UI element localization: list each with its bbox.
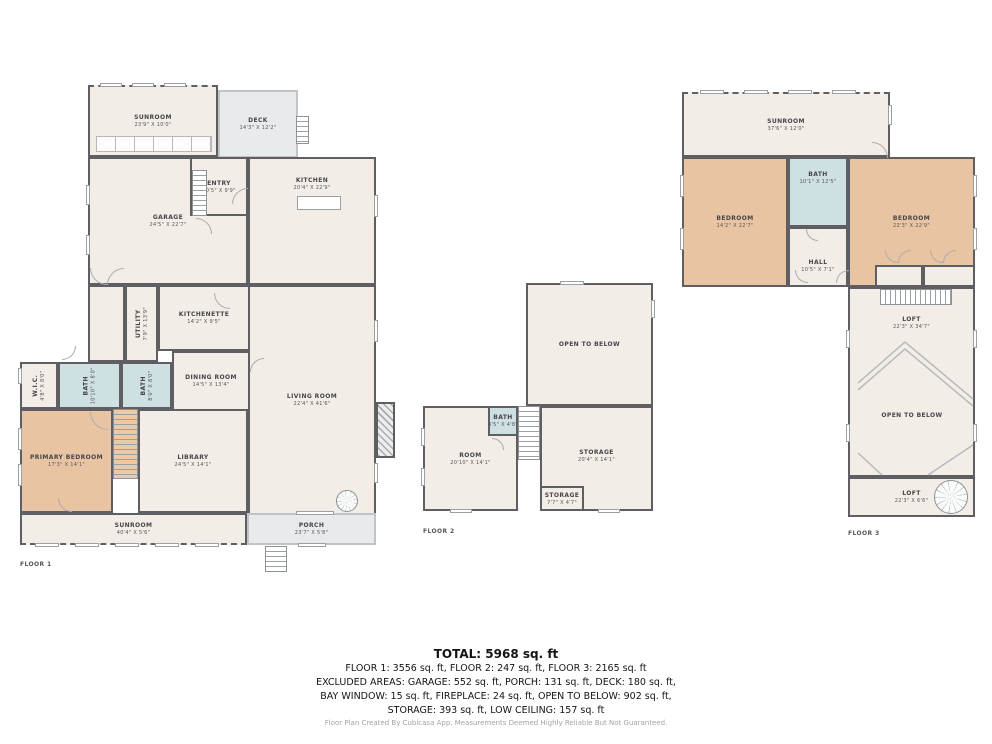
room-open-to-below: OPEN TO BELOW [526, 283, 653, 406]
window [86, 185, 90, 205]
room-dimensions: 4'5" X 4'8" [488, 422, 518, 429]
room-dimensions: 20'4" X 22'9" [250, 185, 374, 192]
room-sunroom: SUNROOM37'6" X 12'0" [682, 92, 890, 157]
room-library: LIBRARY24'5" X 14'1" [138, 409, 248, 513]
room-w-i-c: W.I.C.4'8" X 8'0" [20, 362, 58, 409]
room-name: UTILITY [134, 307, 143, 340]
room [875, 265, 923, 287]
window [651, 300, 655, 318]
room-dimensions: 7'7" X 4'7" [545, 500, 580, 507]
window [680, 228, 684, 250]
window [115, 543, 139, 547]
room-dimensions: 20'10" X 14'1" [450, 460, 490, 467]
window [86, 235, 90, 255]
window [700, 90, 724, 94]
room [88, 285, 125, 362]
room-dimensions: 24'5" X 22'7" [150, 222, 187, 229]
summary-excluded-areas-3: STORAGE: 393 sq. ft, LOW CEILING: 157 sq… [0, 704, 992, 718]
room-dimensions: 14'2" X 9'5" [179, 319, 229, 326]
window [973, 175, 977, 197]
room-name: W.I.C. [31, 371, 40, 401]
window [374, 463, 378, 483]
room-porch: PORCH23'7" X 5'8" [247, 513, 376, 545]
window [832, 90, 856, 94]
window [100, 83, 122, 87]
room-dimensions: 4'8" X 8'0" [40, 371, 47, 401]
room-name: LIBRARY [175, 453, 212, 462]
window [421, 468, 425, 486]
room-dimensions: 10'1" X 12'5" [790, 179, 846, 186]
summary-floor-areas: FLOOR 1: 3556 sq. ft, FLOOR 2: 247 sq. f… [0, 662, 992, 676]
room-kitchenette: KITCHENETTE14'2" X 9'5" [158, 285, 250, 351]
room-name: KITCHEN [250, 176, 374, 185]
room-bath: BATH10'1" X 12'5" [788, 157, 848, 227]
room-dimensions: 10'10" X 8'0" [91, 367, 98, 404]
window [560, 281, 584, 285]
area-summary: TOTAL: 5968 sq. ft FLOOR 1: 3556 sq. ft,… [0, 646, 992, 718]
summary-excluded-areas-1: EXCLUDED AREAS: GARAGE: 552 sq. ft, PORC… [0, 676, 992, 690]
room-bath: BATH8'0" X 8'0" [121, 362, 172, 409]
room-utility: UTILITY7'9" X 13'9" [125, 285, 158, 362]
room-name: BEDROOM [716, 214, 753, 223]
room-name: LOFT [895, 489, 928, 498]
room-bath: BATH10'10" X 8'0" [58, 362, 121, 409]
cathedral-ceiling-lines [848, 287, 975, 477]
room-dimensions: 23'9" X 10'0" [134, 122, 172, 129]
room-name: HALL [790, 258, 846, 267]
window [374, 195, 378, 217]
room-dimensions: 20'4" X 14'1" [542, 457, 651, 464]
room-dimensions: 22'3" X 6'6" [895, 498, 928, 505]
window [788, 90, 812, 94]
room-name: DINING ROOM [185, 373, 237, 382]
room-name: STORAGE [545, 491, 580, 500]
room-name: DECK [240, 116, 277, 125]
window [155, 543, 179, 547]
floor-plans-layer: SUNROOM23'9" X 10'0"DECK14'3" X 12'2"GAR… [0, 0, 992, 744]
floor-label: FLOOR 3 [848, 530, 880, 537]
stairs [192, 170, 207, 216]
room-name: SUNROOM [767, 117, 805, 126]
window [164, 83, 186, 87]
floor-label: FLOOR 2 [423, 528, 455, 535]
window [421, 428, 425, 446]
floor-label: FLOOR 1 [20, 561, 52, 568]
room-dimensions: 14'2" X 22'7" [716, 223, 753, 230]
room-sunroom: SUNROOM40'4" X 5'6" [20, 513, 247, 545]
room-name: GARAGE [150, 213, 187, 222]
window [374, 320, 378, 342]
window [296, 511, 334, 515]
stairs [296, 116, 309, 144]
room-storage: STORAGE7'7" X 4'7" [540, 486, 584, 511]
room-dimensions: 22'4" X 41'6" [287, 401, 337, 408]
stairs [518, 406, 540, 460]
room-dining-room: DINING ROOM14'5" X 13'4" [172, 351, 250, 411]
spiral-stairs [336, 490, 358, 512]
attribution-note: Floor Plan Created By Cubicasa App. Meas… [0, 719, 992, 727]
room-dimensions: 14'5" X 13'4" [185, 382, 237, 389]
summary-excluded-areas-2: BAY WINDOW: 15 sq. ft, FIREPLACE: 24 sq.… [0, 690, 992, 704]
room-bedroom: BEDROOM14'2" X 22'7" [682, 157, 788, 287]
room-name: BATH [139, 371, 148, 401]
window [744, 90, 768, 94]
room-name: BATH [790, 170, 846, 179]
stairs [113, 409, 138, 479]
window [888, 105, 892, 125]
window [680, 175, 684, 197]
room-kitchen: KITCHEN20'4" X 22'9" [248, 157, 376, 285]
room-name: BATH [488, 413, 518, 422]
stairs [265, 546, 287, 572]
room-name: PRIMARY BEDROOM [30, 453, 103, 462]
room-dimensions: 14'3" X 12'2" [240, 125, 277, 132]
window [973, 228, 977, 250]
door-arc [62, 346, 76, 360]
window [18, 428, 22, 450]
window [18, 368, 22, 384]
room-deck: DECK14'3" X 12'2" [218, 90, 298, 158]
spiral-stairs [934, 480, 968, 514]
room-name: SUNROOM [115, 521, 153, 530]
room-name: SUNROOM [134, 113, 172, 122]
window [598, 509, 620, 513]
room-dimensions: 37'6" X 12'0" [767, 126, 805, 133]
room-dimensions: 8'0" X 8'0" [148, 371, 155, 401]
room-dimensions: 23'7" X 5'8" [295, 530, 328, 537]
room-name: BATH [82, 367, 91, 404]
room-name: STORAGE [542, 448, 651, 457]
window [35, 543, 59, 547]
room-name: BEDROOM [893, 214, 930, 223]
room-living-room: LIVING ROOM22'4" X 41'6" [248, 285, 376, 515]
room-name: KITCHENETTE [179, 310, 229, 319]
fireplace [376, 402, 395, 458]
room-name: OPEN TO BELOW [559, 340, 620, 349]
window-bench [96, 136, 212, 152]
room-dimensions: 40'4" X 5'6" [115, 530, 153, 537]
room-dimensions: 24'5" X 14'1" [175, 462, 212, 469]
room-dimensions: 17'3" X 14'1" [30, 462, 103, 469]
room-name: LIVING ROOM [287, 392, 337, 401]
room-dimensions: 22'3" X 22'9" [893, 223, 930, 230]
window [450, 509, 472, 513]
room-name: ROOM [450, 451, 490, 460]
window [132, 83, 154, 87]
room-name: ENTRY [202, 179, 235, 188]
room-dimensions: 7'9" X 13'9" [143, 307, 150, 340]
room [923, 265, 975, 287]
room-name: PORCH [295, 521, 328, 530]
summary-total: TOTAL: 5968 sq. ft [0, 646, 992, 662]
window [195, 543, 219, 547]
fixture [297, 196, 341, 210]
window [18, 464, 22, 486]
window [75, 543, 99, 547]
room-bath: BATH4'5" X 4'8" [488, 406, 518, 436]
window [298, 543, 326, 547]
room-dimensions: 10'5" X 9'9" [202, 188, 235, 195]
